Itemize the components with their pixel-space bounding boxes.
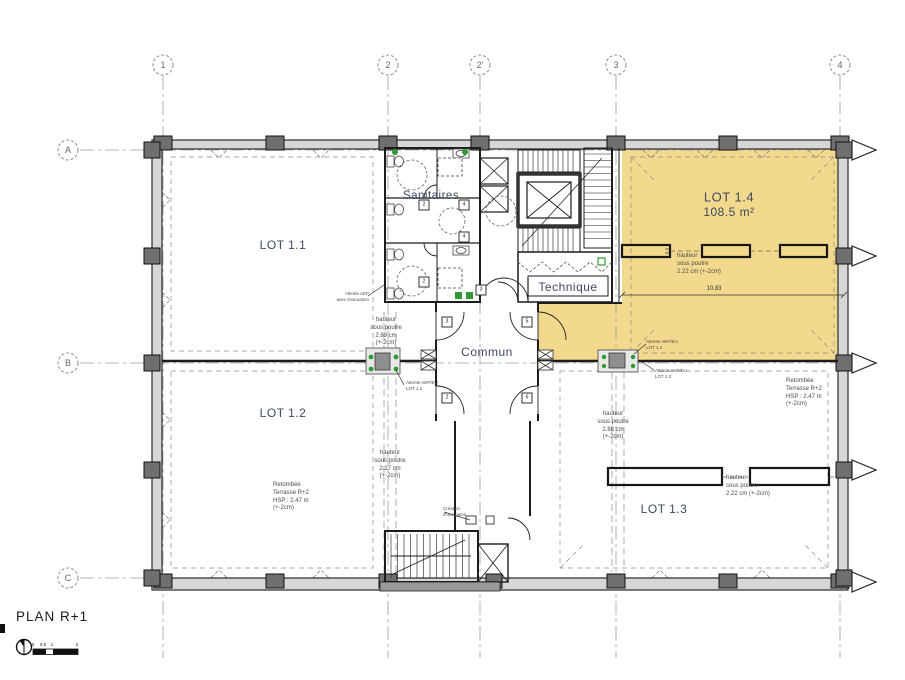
dimension-1083: 10.83 [706,286,721,292]
annotation-hsp-lot14: hauteur sous poutre 2.22 cm (+-2cm) [677,253,721,276]
annotation-hsp-289: hauteur sous poutre 2.89 cm (+-2cm) [370,317,401,348]
annotation-attente-lot14: Attente AEP/EU LOT 1.4 [646,339,678,350]
door-tag: 3 [476,285,487,296]
lot11-label: LOT 1.1 [260,238,307,252]
door-tag: 2 [419,200,430,211]
door-tag: 2 [442,393,453,404]
plan-title: PLAN R+1 [16,609,88,624]
door-tag: 3 [442,317,453,328]
dimension-03: 0.3 [665,248,670,254]
commun-label: Commun [461,345,513,359]
annotation-creation-gaine: Création d'une gaine [443,506,466,517]
door-tag: 4 [459,200,470,211]
floor-plan-canvas: 1 2 2' 3 4 A B C LOT 1.1 LOT 1.2 LOT 1.3… [0,0,905,680]
lot13-label: LOT 1.3 [641,502,688,516]
section-arrow-icons [852,140,876,592]
scale-bar [33,649,78,655]
edge-mark [0,624,5,633]
annotation-retombee-left: Retombée Terrasse R+2 HSP : 2.47 m (+-2c… [273,482,309,513]
technique-room [518,252,612,302]
annotation-attente-lot12: Attente AEP/EU LOT 1.2 [406,380,438,391]
technique-label: Technique [538,280,597,294]
annotation-hsp-227: hauteur sous poutre 2.27 cm (+-2cm) [374,450,405,481]
north-arrow-icon [17,639,32,655]
scale-tick-1: 1 [51,642,54,647]
annotation-hsp-lot13: hauteur sous poutre 2.22 cm (+-2cm) [726,475,770,498]
lot14-label: LOT 1.4 [704,190,754,205]
annotation-attente-lot13: Attente AEP/EU LOT 1.3 [655,368,687,379]
scale-tick-0: 0 [32,642,35,647]
lot14-area: 108.5 m² [703,205,754,219]
grid-col-4: 4 [837,60,842,70]
grid-col-3: 3 [613,60,618,70]
door-tag: 5 [522,317,533,328]
door-tag: 6 [522,393,533,404]
door-tag: 2 [419,277,430,288]
grid-col-2: 2 [385,60,390,70]
annotation-retombee-right: Retombée Terrasse R+2 HSP : 2.47 m (+-2c… [786,378,822,409]
scale-tick-05: 0.5 [40,642,46,647]
stair-core [480,148,612,252]
annotation-attente-aep: Attente AEP avec évacuation [336,291,369,302]
sanitaires-label: Sanitaires [403,190,459,202]
grid-row-b: B [65,358,71,368]
annotation-hsp-288: hauteur sous poutre 2.88 cm (+-2cm) [597,411,628,442]
lot12-label: LOT 1.2 [260,406,307,420]
sanitary-fixtures [387,149,473,299]
grid-col-2p: 2' [477,60,484,70]
door-tag: 4 [459,232,470,243]
plan-drawing: 1 2 2' 3 4 A B C [0,0,905,680]
grid-col-1: 1 [160,60,165,70]
grid-row-c: C [65,573,72,583]
grid-row-a: A [65,145,71,155]
scale-tick-2: 2 [76,642,79,647]
